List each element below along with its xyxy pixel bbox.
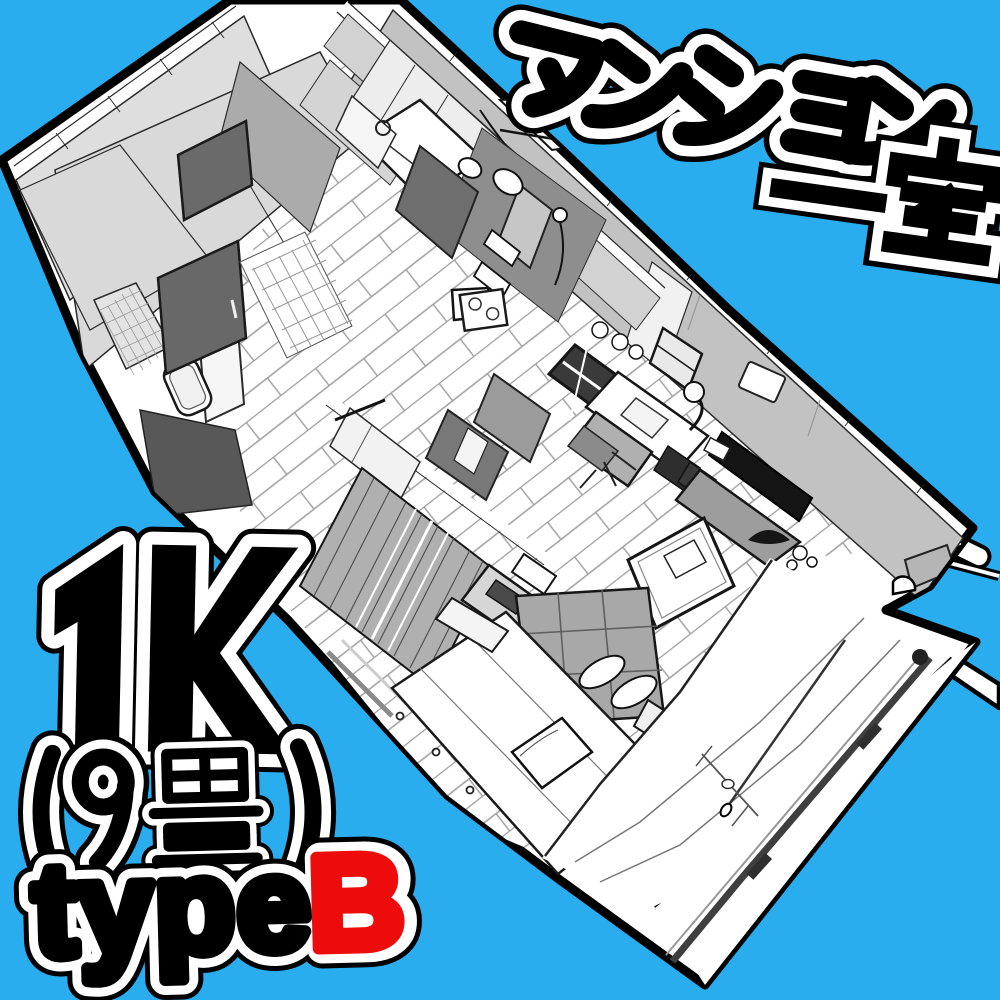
svg-text:B: B bbox=[307, 827, 408, 976]
svg-text:type: type bbox=[31, 830, 314, 984]
